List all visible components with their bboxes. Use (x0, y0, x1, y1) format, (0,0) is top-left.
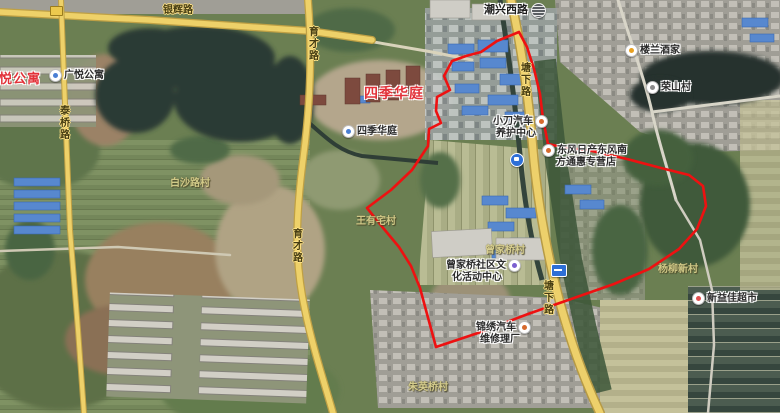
road-label-taoqiao-road: 泰桥路 (57, 105, 69, 141)
estate-label-siji-huating[interactable]: 四季华庭 (364, 86, 424, 102)
poi-guangyue-apartments[interactable]: 广悦公寓 (49, 69, 104, 82)
poi-icon (49, 69, 62, 82)
village-label-yangliu: 杨柳新村 (658, 264, 698, 276)
road-label-yucai-road-north: 育才路 (306, 26, 318, 62)
poi-jinxiu-auto-repair[interactable]: 锦绣汽车 维修理厂 (476, 321, 531, 346)
poi-xinyijia-supermarket[interactable]: 新益佳超市 (692, 292, 757, 305)
village-label-zhuyingqiao: 朱英桥村 (408, 382, 448, 394)
estate-label-guangyue-apartments[interactable]: 广悦公寓 (0, 73, 41, 88)
road-label-tangxia-road-north: 塘下路 (518, 62, 530, 98)
poi-icon (518, 321, 531, 334)
poi-icon (692, 292, 705, 305)
village-label-wangyouzhai: 王有宅村 (356, 216, 396, 228)
village-label-zengjiaqiao: 曾家桥村 (485, 245, 525, 257)
poi-zengjiaqiao-community-center[interactable]: 曾家桥社区文 化活动中心 (446, 259, 521, 284)
transit-station-icon (531, 3, 546, 18)
road-number-badge (50, 6, 63, 16)
poi-xiaodao-auto-care-center[interactable]: 小刀汽车 养护中心 (493, 115, 548, 140)
village-label-baishalu: 白沙路村 (170, 178, 210, 190)
poi-rongshan-village[interactable]: 荣山村 (646, 81, 691, 94)
poi-icon (508, 259, 521, 272)
road-label-chaoxing-west-road[interactable]: 潮兴西路 (484, 3, 546, 18)
road-shield-badge (551, 264, 567, 277)
road-label-yinhui-road: 银辉路 (163, 5, 193, 17)
satellite-map[interactable]: 银辉路 泰桥路 育才路 育才路 塘下路 塘下路 潮兴西路 广悦公寓 四季华庭 广… (0, 0, 780, 413)
poi-loulan-restaurant[interactable]: 楼兰酒家 (625, 44, 680, 57)
road-label-yucai-road-south: 育才路 (290, 228, 302, 264)
bus-stop-icon[interactable] (510, 153, 524, 167)
road-label-text: 潮兴西路 (484, 4, 528, 17)
poi-icon (625, 44, 638, 57)
road-label-tangxia-road-south: 塘下路 (541, 280, 553, 316)
poi-icon (542, 144, 555, 157)
poi-dongfeng-nissan-dealer[interactable]: 东风日产东风南 方通惠专营店 (542, 144, 627, 169)
poi-siji-huating[interactable]: 四季华庭 (342, 125, 397, 138)
poi-icon (646, 81, 659, 94)
poi-icon (342, 125, 355, 138)
poi-icon (535, 115, 548, 128)
